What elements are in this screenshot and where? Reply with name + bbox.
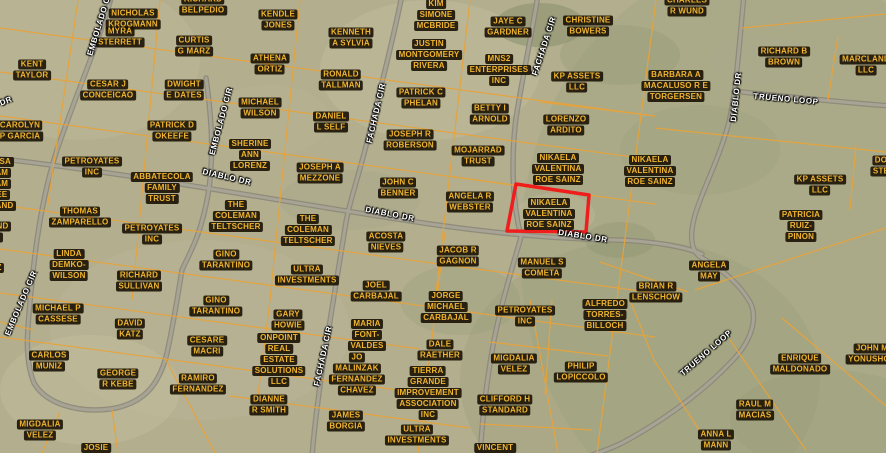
- parcel-owner-text: VALENTINA: [523, 209, 575, 219]
- map-canvas[interactable]: NICHOLASKROGMANNRICHARDBELPEDIOKENDLEJON…: [0, 0, 886, 453]
- parcel-label-christine-bowers: CHRISTINEBOWERS: [563, 16, 613, 37]
- parcel-owner-text: MICHAEL P: [33, 304, 84, 314]
- parcel-label-michael-wilson: MICHAELWILSON: [239, 98, 282, 119]
- parcel-owner-text: KP ASSETS: [551, 72, 603, 82]
- parcel-owner-text: JAYE C: [491, 17, 525, 27]
- parcel-label-migdalia-velez-2: MIGDALIAVELEZ: [491, 354, 537, 375]
- parcel-owner-text: ULTRA: [291, 265, 324, 275]
- parcel-owner-text: PETROYATES: [62, 157, 122, 167]
- parcel-owner-text: ENEE: [0, 190, 10, 200]
- parcel-owner-text: LENSCHOW: [629, 293, 682, 303]
- parcel-owner-text: COLEMAN: [285, 225, 332, 235]
- parcel-owner-text: ARDITO: [548, 126, 585, 136]
- parcel-owner-text: ULTRA: [401, 425, 434, 435]
- parcel-owner-text: PHAM: [0, 168, 11, 178]
- parcel-owner-text: LORENZ: [230, 161, 269, 171]
- parcel-owner-text: JACOB R: [437, 246, 479, 256]
- parcel-owner-text: R KEBE: [100, 380, 136, 390]
- parcel-label-ultra-investments-2: ULTRAINVESTMENTS: [385, 425, 449, 446]
- parcel-owner-text: MALDONADO: [770, 365, 830, 375]
- parcel-label-dianne-r-smith: DIANNER SMITH: [249, 395, 288, 416]
- parcel-owner-text: KROGMANN: [106, 20, 161, 30]
- parcel-owner-text: PATRICIA: [779, 210, 822, 220]
- parcel-owner-text: TORGERSEN: [647, 92, 704, 102]
- parcel-owner-text: ANNA L: [698, 430, 734, 440]
- parcel-owner-text: CHRISTINE: [563, 16, 613, 26]
- parcel-owner-text: RAUL M: [736, 400, 773, 410]
- parcel-label-carolyn-garcia: CAROLYNP GARCIA: [0, 121, 43, 142]
- parcel-owner-text: CKLAND: [0, 201, 16, 211]
- parcel-label-edge-fragment-left-2: LANDC: [0, 222, 11, 243]
- parcel-label-gino-tarantino-1: GINOTARANTINO: [199, 250, 252, 271]
- parcel-owner-text: JOHN C: [380, 178, 416, 188]
- parcel-label-michael-p-cassese: MICHAEL PCASSESE: [33, 304, 84, 325]
- parcel-owner-text: DO: [872, 156, 886, 166]
- parcel-owner-text: TARANTINO: [199, 261, 252, 271]
- parcel-label-philip-lopiccolo: PHILIPLOPICCOLO: [554, 362, 608, 383]
- parcel-label-barbara-macaluso-torgersen: BARBARA AMACALUSO R ETORGERSEN: [641, 70, 710, 102]
- parcel-owner-text: TARANTINO: [189, 307, 242, 317]
- parcel-owner-text: MICHAEL: [239, 98, 282, 108]
- parcel-owner-text: G MARZ: [175, 47, 213, 57]
- parcel-label-justin-montgomery-rivera: JUSTINMONTGOMERYRIVERA: [396, 39, 462, 71]
- parcel-owner-text: MACALUSO R E: [641, 81, 710, 91]
- parcel-owner-text: NIEVES: [368, 243, 404, 253]
- parcel-owner-text: MAY: [698, 272, 721, 282]
- road-label-diablo-dr-north: DIABLO DR: [729, 72, 743, 123]
- parcel-label-kent-taylor: KENTTAYLOR: [13, 60, 51, 81]
- parcel-label-maria-font-valdes: MARIAFONT-VALDES: [348, 319, 386, 351]
- parcel-owner-text: KATZ: [117, 330, 144, 340]
- parcel-owner-text: STE: [870, 167, 886, 177]
- parcel-label-david-katz: DAVIDKATZ: [115, 319, 145, 340]
- parcel-owner-text: MICHAEL: [425, 302, 468, 312]
- parcel-label-lorenzo-ardito: LORENZOARDITO: [543, 115, 589, 136]
- parcel-label-linda-demko-wilson: LINDADEMKO-WILSON: [50, 249, 89, 281]
- parcel-owner-text: PHAM: [0, 179, 11, 189]
- parcel-label-anna-l-mann: ANNA LMANN: [698, 430, 734, 451]
- parcel-owner-text: MIGDALIA: [17, 420, 63, 430]
- parcel-label-kp-assets-llc-1: KP ASSETSLLC: [551, 72, 603, 93]
- parcel-owner-text: JOEL: [363, 281, 390, 291]
- parcel-label-raul-m-macias: RAUL MMACIAS: [736, 400, 774, 421]
- parcel-owner-text: CARBAJAL: [421, 313, 472, 323]
- parcel-owner-text: ANGELA: [689, 261, 729, 271]
- parcel-owner-text: VALENTINA: [624, 166, 676, 176]
- parcel-owner-text: FERNANDEZ: [170, 385, 226, 395]
- parcel-label-the-coleman-teltscher-1: THECOLEMANTELTSCHER: [209, 200, 263, 232]
- parcel-owner-text: ANN: [239, 150, 262, 160]
- parcel-owner-text: RICHARD: [117, 271, 160, 281]
- parcel-owner-text: TRUST: [462, 157, 495, 167]
- parcel-owner-text: DANIEL: [313, 112, 349, 122]
- parcel-label-the-coleman-teltscher-2: THECOLEMANTELTSCHER: [281, 214, 335, 246]
- parcel-owner-text: LLC: [566, 83, 587, 93]
- parcel-owner-text: PHELAN: [401, 99, 440, 109]
- parcel-owner-text: GINO: [203, 296, 229, 306]
- parcel-owner-text: TELTSCHER: [209, 222, 263, 232]
- parcel-label-petroyates-inc-2: PETROYATESINC: [122, 224, 182, 245]
- parcel-label-tierra-grande-improvement: TIERRAGRANDEIMPROVEMENTASSOCIATIONINC: [395, 366, 462, 420]
- parcel-owner-text: NIKAELA: [537, 153, 579, 163]
- parcel-owner-text: ABBATECOLA: [131, 172, 193, 182]
- parcel-label-abbatecola-family-trust: ABBATECOLAFAMILYTRUST: [131, 172, 193, 204]
- parcel-owner-text: PATRICK D: [147, 121, 196, 131]
- parcel-owner-text: KIM: [426, 0, 446, 9]
- parcel-owner-text: CLIFFORD H: [477, 395, 532, 405]
- parcel-label-sherine-ann-lorenz: SHERINEANNLORENZ: [229, 139, 271, 171]
- parcel-label-dale-raether: DALERAETHER: [417, 340, 462, 361]
- parcel-owner-text: LAND: [0, 222, 11, 232]
- parcel-owner-text: THE: [297, 214, 319, 224]
- parcel-owner-text: INC: [489, 76, 508, 86]
- parcel-owner-text: INC: [142, 235, 161, 245]
- parcel-owner-text: TRUST: [146, 194, 179, 204]
- parcel-label-enrique-maldonado: ENRIQUEMALDONADO: [770, 354, 830, 375]
- parcel-owner-text: JOSEPH A: [297, 163, 344, 173]
- parcel-label-patricia-ruiz-pinon: PATRICIARUIZ-PINON: [779, 210, 822, 242]
- road-label-fachada-cir-east: FACHADA CIR: [530, 15, 558, 76]
- parcel-owner-text: MUNIZ: [33, 362, 64, 372]
- parcel-owner-text: PETROYATES: [122, 224, 182, 234]
- parcel-owner-text: MARIA: [351, 319, 383, 329]
- parcel-owner-text: THE: [225, 200, 247, 210]
- parcel-owner-text: COLEMAN: [213, 211, 260, 221]
- parcel-owner-text: CHARLES: [664, 0, 709, 6]
- parcel-label-nikaela-roe-sainz-highlighted: NIKAELAVALENTINAROE SAINZ: [523, 198, 575, 230]
- parcel-owner-text: GEORGE: [97, 369, 138, 379]
- parcel-owner-text: MNS2: [485, 54, 513, 64]
- parcel-owner-text: WILSON: [50, 271, 88, 281]
- parcel-label-clifford-h-standard: CLIFFORD HSTANDARD: [477, 395, 532, 416]
- parcel-owner-text: ENRIQUE: [779, 354, 822, 364]
- parcel-label-joseph-r-roberson: JOSEPH RROBERSON: [384, 130, 437, 151]
- parcel-owner-text: RUIZ-: [787, 221, 814, 231]
- parcel-owner-text: FERNANDEZ: [329, 375, 385, 385]
- parcel-label-mojarrad-trust: MOJARRADTRUST: [452, 146, 505, 167]
- parcel-owner-text: GAGNON: [437, 257, 479, 267]
- parcel-label-john-c-benner: JOHN CBENNER: [378, 178, 418, 199]
- parcel-label-migdalia-velez-1: MIGDALIAVELEZ: [17, 420, 63, 441]
- parcel-owner-text: FONT-: [352, 330, 382, 340]
- parcel-owner-text: MANN: [701, 441, 731, 451]
- parcel-owner-text: VELEZ: [24, 431, 56, 441]
- parcel-owner-text: VALDES: [348, 341, 386, 351]
- parcel-label-jaye-c-gardner: JAYE CGARDNER: [485, 17, 532, 38]
- parcel-label-kendle-jones: KENDLEJONES: [258, 10, 297, 31]
- parcel-owner-text: TAYLOR: [13, 71, 51, 81]
- parcel-owner-text: ORTIZ: [255, 65, 285, 75]
- parcel-owner-text: A SYLVIA: [330, 39, 373, 49]
- parcel-owner-text: LLC: [855, 66, 876, 76]
- parcel-owner-text: C: [0, 233, 2, 243]
- parcel-label-josie: JOSIE: [81, 443, 111, 453]
- road-label-embolado-cir-bottom: EMBOLADO CIR: [3, 269, 39, 337]
- parcel-owner-text: E DATES: [164, 91, 204, 101]
- parcel-owner-text: KENDLE: [258, 10, 297, 20]
- parcel-owner-text: HOWIE: [271, 321, 304, 331]
- parcel-owner-text: COMETA: [522, 269, 562, 279]
- parcel-label-mns2-enterprises: MNS2ENTERPRISESINC: [467, 54, 531, 86]
- parcel-label-petroyates-inc-3: PETROYATESINC: [495, 306, 555, 327]
- parcel-owner-text: DALE: [426, 340, 454, 350]
- road-label-embolado-cir-mid: EMBOLADO CIR: [208, 86, 235, 156]
- parcel-owner-text: JUSTIN: [412, 39, 447, 49]
- parcel-owner-text: MOJARRAD: [452, 146, 505, 156]
- parcel-owner-text: ROBERSON: [384, 141, 437, 151]
- parcel-label-kim-simone-mcbride: KIMSIMONEMCBRIDE: [414, 0, 458, 31]
- parcel-owner-text: CARBAJAL: [351, 292, 402, 302]
- parcel-owner-text: Z: [0, 263, 4, 273]
- parcel-label-myra-sterrett: MYRASTERRETT: [96, 27, 145, 48]
- parcel-label-ultra-investments-1: ULTRAINVESTMENTS: [275, 265, 339, 286]
- parcel-owner-text: BORGIA: [327, 422, 365, 432]
- parcel-owner-text: WEBSTER: [447, 203, 493, 213]
- parcel-owner-text: STANDARD: [480, 406, 531, 416]
- parcel-label-edge-fragment-left-1: ELISSAPHAMPHAMENEECKLAND: [0, 157, 16, 211]
- parcel-owner-text: MARCLAND: [840, 55, 886, 65]
- parcel-owner-text: CONCEICAO: [80, 91, 136, 101]
- label-layer: NICHOLASKROGMANNRICHARDBELPEDIOKENDLEJON…: [0, 0, 886, 453]
- parcel-owner-text: RONALD: [321, 70, 361, 80]
- parcel-owner-text: JAMES: [329, 411, 363, 421]
- parcel-owner-text: FAMILY: [145, 183, 180, 193]
- parcel-owner-text: BRIAN R: [636, 282, 676, 292]
- parcel-owner-text: JORGE: [429, 291, 463, 301]
- parcel-owner-text: PHILIP: [565, 362, 597, 372]
- parcel-owner-text: ELISSA: [0, 157, 14, 167]
- parcel-owner-text: WILSON: [241, 109, 279, 119]
- parcel-label-kp-assets-llc-2: KP ASSETSLLC: [794, 175, 846, 196]
- parcel-owner-text: OKEEFE: [152, 132, 191, 142]
- parcel-label-joseph-a-mezzone: JOSEPH AMEZZONE: [297, 163, 344, 184]
- parcel-owner-text: ONPOINT: [258, 333, 301, 343]
- parcel-owner-text: SIMONE: [417, 10, 455, 20]
- parcel-label-james-borgia: JAMESBORGIA: [327, 411, 365, 432]
- parcel-label-manuel-s-cometa: MANUEL SCOMETA: [518, 258, 566, 279]
- parcel-owner-text: VALENTINA: [532, 164, 584, 174]
- parcel-owner-text: L SELF: [314, 123, 348, 133]
- parcel-owner-text: LORENZO: [543, 115, 589, 125]
- parcel-owner-text: KP ASSETS: [794, 175, 846, 185]
- parcel-owner-text: RAETHER: [417, 351, 462, 361]
- parcel-owner-text: BARBARA A: [649, 70, 704, 80]
- parcel-owner-text: JOHN M: [853, 344, 886, 354]
- parcel-owner-text: CESARE: [187, 336, 227, 346]
- parcel-owner-text: ROE SAINZ: [625, 177, 675, 187]
- parcel-owner-text: GARY: [274, 310, 303, 320]
- parcel-owner-text: NIKAELA: [629, 155, 671, 165]
- parcel-owner-text: CARLOS: [29, 351, 69, 361]
- parcel-label-john-m-yonushon: JOHN MYONUSHON: [846, 344, 886, 365]
- parcel-owner-text: MACRI: [191, 347, 223, 357]
- parcel-owner-text: INC: [82, 168, 101, 178]
- parcel-owner-text: MALINZAK: [333, 364, 381, 374]
- parcel-label-charles-r-wund: CHARLESR WUND: [664, 0, 709, 17]
- road-label-fachada-cir-south: FACHADA CIR: [312, 325, 334, 387]
- parcel-owner-text: ANGELA R: [446, 192, 494, 202]
- parcel-owner-text: ALFREDO: [582, 299, 627, 309]
- parcel-label-betty-i-arnold: BETTY IARNOLD: [470, 104, 510, 125]
- parcel-owner-text: TELTSCHER: [281, 236, 335, 246]
- parcel-label-curtis-g-marz: CURTISG MARZ: [175, 36, 213, 57]
- parcel-owner-text: VINCENT: [474, 443, 516, 453]
- parcel-owner-text: CURTIS: [176, 36, 212, 46]
- parcel-owner-text: DWIGHT: [165, 80, 204, 90]
- parcel-owner-text: MCBRIDE: [414, 21, 458, 31]
- parcel-label-jorge-michael-carbajal: JORGEMICHAELCARBAJAL: [421, 291, 472, 323]
- road-label-fachada-cir-west: FACHADA CIR: [365, 82, 388, 144]
- parcel-owner-text: RICHARD B: [758, 47, 810, 57]
- parcel-owner-text: STERRETT: [96, 38, 145, 48]
- parcel-owner-text: P GARCIA: [0, 132, 43, 142]
- parcel-label-gary-howie: GARYHOWIE: [271, 310, 304, 331]
- parcel-label-jo-malinzak-fernandez-chavez: JOMALINZAKFERNANDEZCHAVEZ: [329, 353, 385, 396]
- parcel-owner-text: PETROYATES: [495, 306, 555, 316]
- parcel-label-acosta-nieves: ACOSTANIEVES: [366, 232, 405, 253]
- parcel-owner-text: CAROLYN: [0, 121, 43, 131]
- parcel-owner-text: DEMKO-: [50, 260, 89, 270]
- parcel-owner-text: BETTY I: [472, 104, 509, 114]
- parcel-owner-text: DAVID: [115, 319, 145, 329]
- parcel-owner-text: BENNER: [378, 189, 418, 199]
- parcel-label-ramiro-fernandez: RAMIROFERNANDEZ: [170, 374, 226, 395]
- road-label-embolado-cir-top: EMBOLADO CIR: [85, 0, 114, 57]
- parcel-label-vincent: VINCENT: [474, 443, 516, 453]
- parcel-label-jacob-r-gagnon: JACOB RGAGNON: [437, 246, 479, 267]
- parcel-owner-text: LINDA: [54, 249, 84, 259]
- parcel-label-nikaela-roe-sainz-1: NIKAELAVALENTINAROE SAINZ: [532, 153, 584, 185]
- parcel-label-cesar-conceicao: CESAR JCONCEICAO: [80, 80, 136, 101]
- parcel-label-george-r-kebe: GEORGER KEBE: [97, 369, 138, 390]
- parcel-label-joel-carbajal: JOELCARBAJAL: [351, 281, 402, 302]
- parcel-owner-text: LLC: [268, 377, 289, 387]
- parcel-label-nikaela-roe-sainz-3: NIKAELAVALENTINAROE SAINZ: [624, 155, 676, 187]
- parcel-owner-text: MYRA: [105, 27, 134, 37]
- parcel-owner-text: NICHOLAS: [109, 9, 157, 19]
- parcel-owner-text: TORRES-: [584, 310, 626, 320]
- parcel-owner-text: CHAVEZ: [338, 386, 377, 396]
- parcel-owner-text: GARDNER: [485, 28, 532, 38]
- parcel-owner-text: RICHARD: [181, 0, 224, 5]
- parcel-label-onpoint-real-estate: ONPOINTREALESTATESOLUTIONSLLC: [252, 333, 305, 387]
- parcel-label-patrick-okeefe: PATRICK DOKEEFE: [147, 121, 196, 142]
- parcel-owner-text: MEZZONE: [297, 174, 343, 184]
- road-label-trueno-loop-bottom: TRUENO LOOP: [678, 328, 733, 378]
- parcel-label-angela-may: ANGELAMAY: [689, 261, 729, 282]
- parcel-owner-text: ENTERPRISES: [467, 65, 531, 75]
- parcel-owner-text: ROE SAINZ: [533, 175, 583, 185]
- parcel-owner-text: R WUND: [667, 7, 706, 17]
- parcel-owner-text: GINO: [213, 250, 239, 260]
- road-label-diablo-dr-1: DIABLO DR: [202, 167, 253, 187]
- parcel-label-edge-fragment-do-ste: DOSTE: [870, 156, 886, 177]
- parcel-owner-text: RIVERA: [411, 61, 447, 71]
- parcel-owner-text: SHERINE: [229, 139, 271, 149]
- parcel-owner-text: ZAMPARELLO: [49, 218, 111, 228]
- parcel-owner-text: ATHENA: [251, 54, 290, 64]
- parcel-owner-text: YONUSHON: [846, 355, 886, 365]
- parcel-owner-text: TALLMAN: [319, 81, 363, 91]
- parcel-owner-text: JOSIE: [81, 443, 111, 453]
- parcel-owner-text: ASSOCIATION: [397, 399, 459, 409]
- parcel-label-angela-r-webster: ANGELA RWEBSTER: [446, 192, 494, 213]
- parcel-label-carlos-muniz: CARLOSMUNIZ: [29, 351, 69, 372]
- parcel-owner-text: KENT: [18, 60, 46, 70]
- parcel-label-ronald-tallman: RONALDTALLMAN: [319, 70, 363, 91]
- parcel-owner-text: INVESTMENTS: [275, 276, 339, 286]
- parcel-label-petroyates-inc-1: PETROYATESINC: [62, 157, 122, 178]
- parcel-owner-text: SOLUTIONS: [252, 366, 305, 376]
- parcel-label-marcland-llc: MARCLANDLLC: [840, 55, 886, 76]
- parcel-label-cesare-macri: CESAREMACRI: [187, 336, 227, 357]
- parcel-owner-text: KENNETH: [328, 28, 373, 38]
- road-label-diablo-dr-2: DIABLO DR: [365, 205, 416, 223]
- parcel-owner-text: IMPROVEMENT: [395, 388, 462, 398]
- parcel-owner-text: ARNOLD: [470, 115, 510, 125]
- parcel-owner-text: SULLIVAN: [116, 282, 162, 292]
- parcel-label-alfredo-torres-billoch: ALFREDOTORRES-BILLOCH: [582, 299, 627, 331]
- parcel-label-edge-fragment-left-3: Z: [0, 263, 4, 273]
- road-label-trueno-loop-top: TRUENO LOOP: [753, 92, 819, 107]
- parcel-owner-text: R SMITH: [249, 406, 288, 416]
- parcel-owner-text: INVESTMENTS: [385, 436, 449, 446]
- parcel-owner-text: MANUEL S: [518, 258, 566, 268]
- parcel-owner-text: BELPEDIO: [179, 6, 227, 16]
- parcel-owner-text: ACOSTA: [366, 232, 405, 242]
- parcel-owner-text: THOMAS: [60, 207, 101, 217]
- parcel-owner-text: DIANNE: [251, 395, 288, 405]
- parcel-owner-text: MACIAS: [736, 411, 774, 421]
- parcel-label-richard-sullivan: RICHARDSULLIVAN: [116, 271, 162, 292]
- parcel-owner-text: ESTATE: [261, 355, 298, 365]
- parcel-label-dwight-dates: DWIGHTE DATES: [164, 80, 204, 101]
- parcel-owner-text: CASSESE: [36, 315, 81, 325]
- parcel-owner-text: LOPICCOLO: [554, 373, 608, 383]
- parcel-label-kenneth-a-sylvia: KENNETHA SYLVIA: [328, 28, 373, 49]
- parcel-label-richard-belpedio: RICHARDBELPEDIO: [179, 0, 227, 16]
- parcel-owner-text: INC: [418, 410, 437, 420]
- parcel-label-nicholas-krogmann: NICHOLASKROGMANN: [106, 9, 161, 30]
- road-label-diablo-dr-3: DIABLO DR: [558, 228, 609, 245]
- parcel-label-patrick-c-phelan: PATRICK CPHELAN: [396, 88, 445, 109]
- parcel-owner-text: PATRICK C: [396, 88, 445, 98]
- parcel-owner-text: REAL: [265, 344, 293, 354]
- parcel-owner-text: JO: [349, 353, 365, 363]
- parcel-label-daniel-l-self: DANIELL SELF: [313, 112, 349, 133]
- parcel-owner-text: BILLOCH: [584, 321, 626, 331]
- parcel-owner-text: CESAR J: [87, 80, 128, 90]
- parcel-owner-text: JONES: [261, 21, 294, 31]
- parcel-label-richard-b-brown: RICHARD BBROWN: [758, 47, 810, 68]
- parcel-owner-text: JOSEPH R: [386, 130, 433, 140]
- parcel-owner-text: PINON: [785, 232, 816, 242]
- parcel-owner-text: VELEZ: [498, 365, 530, 375]
- parcel-label-athena-ortiz: ATHENAORTIZ: [251, 54, 290, 75]
- parcel-owner-text: GRANDE: [408, 377, 449, 387]
- road-label-dr-fragment-left: DR: [0, 94, 14, 107]
- parcel-owner-text: ROE SAINZ: [524, 220, 574, 230]
- parcel-owner-text: TIERRA: [410, 366, 446, 376]
- parcel-label-gino-tarantino-2: GINOTARANTINO: [189, 296, 242, 317]
- parcel-owner-text: MIGDALIA: [491, 354, 537, 364]
- parcel-owner-text: INC: [515, 317, 534, 327]
- parcel-owner-text: MONTGOMERY: [396, 50, 462, 60]
- parcel-owner-text: LLC: [809, 186, 830, 196]
- parcel-owner-text: RAMIRO: [179, 374, 218, 384]
- parcel-owner-text: BOWERS: [567, 27, 609, 37]
- parcel-label-brian-r-lenschow: BRIAN RLENSCHOW: [629, 282, 682, 303]
